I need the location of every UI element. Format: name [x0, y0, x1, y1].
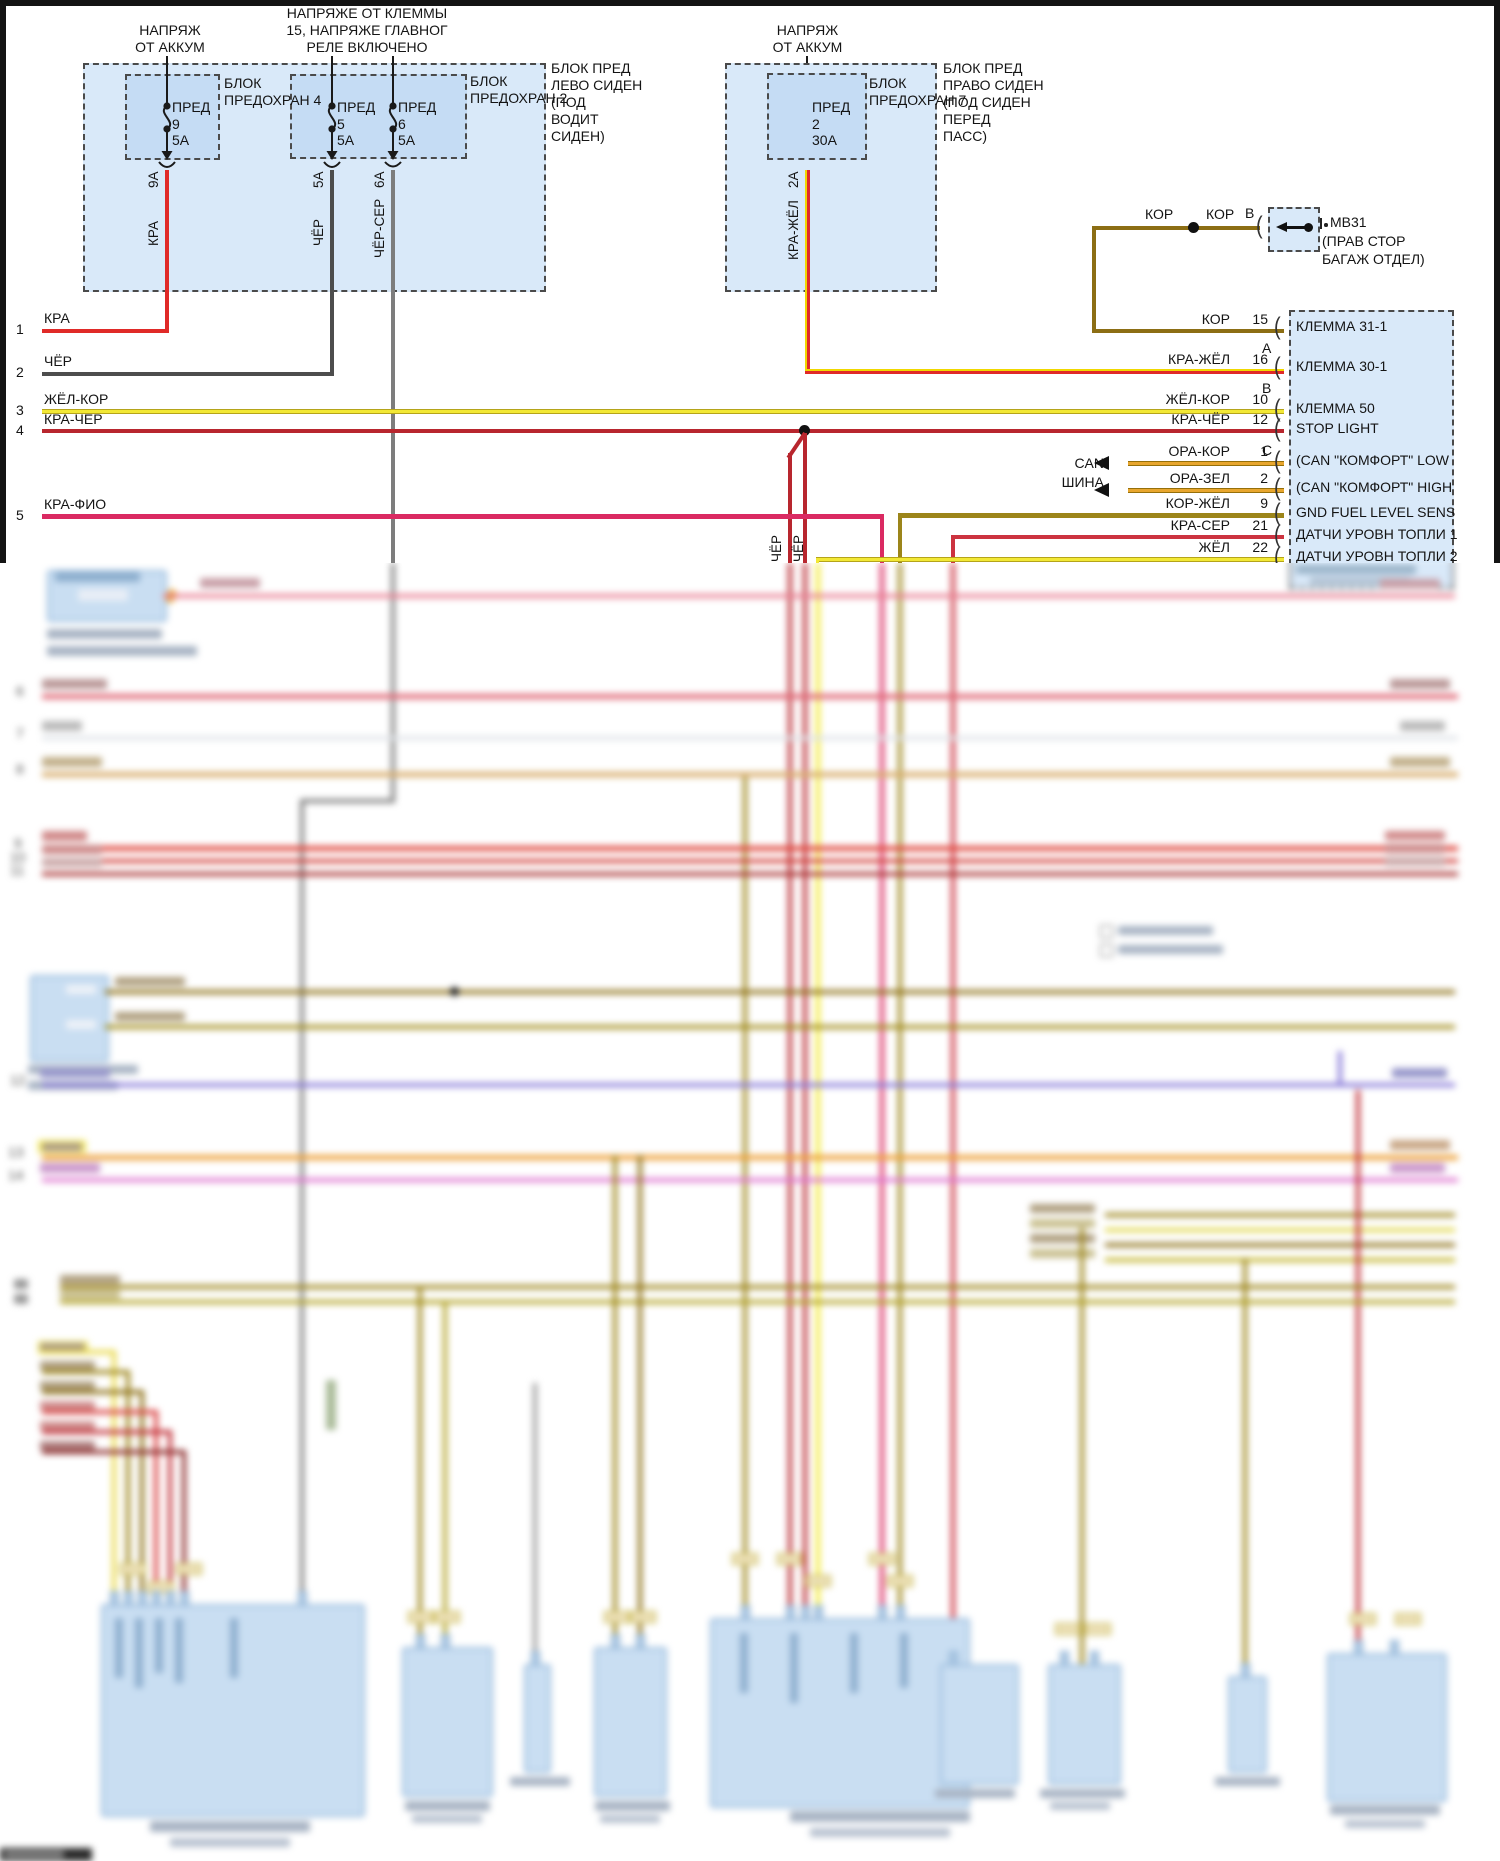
blurred-pin — [1060, 1651, 1069, 1666]
fuse9-rating-label: 9А — [146, 162, 161, 188]
splice-dot-kor — [1188, 222, 1199, 233]
blurred-wire-olive — [105, 1025, 1455, 1029]
blurred-wire-red-gray — [951, 563, 955, 1664]
row15-pin: 15 — [1238, 311, 1268, 328]
fuse-panel-right-location: БЛОК ПРЕДПРАВО СИДЕН (ПОД СИДЕНПЕРЕД ПАС… — [943, 60, 1044, 145]
blurred-text — [595, 1801, 670, 1811]
connector-arc-ground: ( — [1256, 214, 1263, 239]
blurred-wire — [154, 1410, 158, 1604]
blurred-tag — [805, 1575, 831, 1587]
blurred-pin — [298, 1591, 307, 1606]
wire2-label: ЧЁР — [44, 353, 72, 370]
blurred-tag — [1055, 1623, 1081, 1635]
row15-desc: КЛЕММА 31-1 — [1296, 318, 1387, 335]
blurred-text — [40, 1068, 110, 1078]
blurred-text — [42, 858, 102, 867]
blurred-wire — [42, 694, 1458, 699]
blurred-pin — [166, 1591, 175, 1606]
wire3-label: ЖЁЛ-КОР — [44, 391, 108, 408]
row22-pin: 22 — [1238, 539, 1268, 556]
blurred-text — [1380, 579, 1440, 589]
blurred-text — [412, 1815, 482, 1823]
blurred-text — [60, 1290, 120, 1299]
blurred-text — [40, 1421, 95, 1430]
blurred-text — [40, 1163, 100, 1173]
blurred-text — [115, 1012, 185, 1021]
feed-battery-label-2: НАПРЯЖОТ АККУМ — [735, 22, 880, 56]
row9-desc: GND FUEL LEVEL SENS — [1296, 504, 1455, 521]
blurred-wire-gray — [300, 799, 395, 803]
blurred-text — [55, 572, 140, 582]
blurred-wire-red — [803, 563, 807, 1618]
blurred-wire-pink — [163, 594, 1455, 598]
fuse5-name: ПРЕД — [337, 99, 375, 116]
blurred-wire — [1080, 1228, 1084, 1664]
fuse2-num: 2 — [812, 116, 820, 133]
row12-wire: КРА-ЧЁР — [1100, 411, 1230, 428]
blurred-text — [1030, 1204, 1095, 1213]
feed-terminal15-label: НАПРЯЖЕ ОТ КЛЕММЫ15, НАПРЯЖЕ ГЛАВНОГРЕЛЕ… — [232, 5, 502, 56]
blurred-component-box — [1228, 1676, 1267, 1773]
fuse9-wire-label: КРА — [146, 206, 161, 246]
blurred-wire — [418, 1285, 422, 1647]
fuse2-rating-label: 2А — [786, 162, 801, 188]
row16-pin: 16 — [1238, 351, 1268, 368]
wire-chyor-ser-vertical — [391, 170, 395, 563]
blurred-pin — [801, 1605, 810, 1620]
ground-symbol-bar — [1320, 218, 1322, 229]
blurred-pin — [814, 1605, 823, 1620]
wire-kra-fio-vertical — [880, 514, 884, 563]
row15-arc: ( — [1274, 315, 1281, 340]
row16-desc: КЛЕММА 30-1 — [1296, 358, 1387, 375]
row2-arc: ( — [1274, 476, 1281, 501]
blurred-pin — [1090, 1651, 1099, 1666]
blurred-text — [40, 1381, 95, 1390]
blurred-vertical-text — [326, 1380, 336, 1430]
blurred-row-num: 11 — [10, 862, 25, 878]
blurred-text — [40, 1401, 95, 1410]
blurred-text — [1330, 1805, 1440, 1815]
blurred-wire-olive — [743, 772, 747, 1618]
ground-pin-letter: B — [1245, 205, 1254, 222]
blurred-text — [1345, 1820, 1425, 1828]
blurred-pin — [416, 1634, 425, 1649]
blurred-wire-red — [788, 563, 792, 1618]
blurred-text — [42, 721, 82, 731]
blurred-component-box — [524, 1664, 551, 1773]
blurred-component-box — [1327, 1653, 1447, 1802]
wire-kra-chyor — [42, 429, 1284, 433]
blurred-tag — [604, 1611, 630, 1623]
blurred-wire — [182, 1450, 186, 1604]
fuse9-amp: 5А — [172, 132, 189, 149]
blurred-text — [790, 1633, 798, 1703]
blurred-tag — [1350, 1613, 1376, 1625]
blurred-wire-violet — [1338, 1051, 1342, 1083]
row12-pin: 12 — [1238, 411, 1268, 428]
blurred-component-box — [940, 1664, 1019, 1785]
fuse6-rating-label: 6А — [372, 162, 387, 188]
blurred-text — [740, 1633, 748, 1693]
blurred-wire-orange — [42, 1155, 1458, 1160]
wiring-diagram-page: НАПРЯЖОТ АККУМ НАПРЯЖЕ ОТ КЛЕММЫ15, НАПР… — [0, 0, 1500, 1861]
blurred-text — [175, 1618, 183, 1683]
fuse6-amp: 5А — [398, 132, 415, 149]
blurred-text — [115, 1618, 123, 1678]
wire-kor-to-ground — [1092, 226, 1260, 230]
blurred-pin — [896, 1605, 905, 1620]
blurred-text — [4, 1851, 64, 1858]
wire5-label: КРА-ФИО — [44, 496, 106, 513]
blurred-junction — [450, 987, 459, 996]
wire-kra-vertical — [165, 170, 169, 333]
blurred-wire — [168, 1430, 172, 1604]
row1-arc: ( — [1274, 449, 1281, 474]
blurred-text — [1030, 1234, 1095, 1243]
blurred-text — [600, 1815, 660, 1823]
blurred-wire — [42, 1390, 140, 1394]
can-bus-label-2: ШИНА — [1014, 474, 1104, 491]
blurred-tag — [869, 1553, 895, 1565]
row12-arc: ( — [1274, 417, 1281, 442]
blurred-text — [405, 1801, 490, 1811]
wire3-num: 3 — [16, 402, 24, 419]
wire-kor-vertical — [1092, 226, 1096, 333]
blurred-pin — [786, 1605, 795, 1620]
blurred-text — [1390, 1140, 1450, 1150]
can-bus-label-1: CAN — [1014, 455, 1104, 472]
blurred-text — [150, 1821, 310, 1832]
blurred-wire — [1243, 1258, 1247, 1676]
blurred-row-num: 6 — [16, 683, 24, 699]
blurred-pin — [611, 1634, 620, 1649]
blurred-wire — [42, 1350, 112, 1354]
ground-name: MB31 — [1330, 214, 1367, 231]
blurred-wire — [1105, 1228, 1455, 1232]
blurred-wire — [42, 872, 1458, 876]
fuse-box-4-label: БЛОКПРЕДОХРАН 4 — [224, 75, 321, 109]
blurred-text — [810, 1828, 950, 1837]
blurred-text — [1118, 926, 1213, 935]
blurred-pin — [878, 1605, 887, 1620]
blurred-wire — [42, 859, 1458, 863]
blurred-tag — [1395, 1613, 1421, 1625]
blurred-text — [42, 679, 107, 689]
blurred-text — [40, 1441, 95, 1450]
blurred-wire-olive — [898, 563, 902, 1618]
row1-pin: 1 — [1238, 443, 1268, 460]
row2-desc: (CAN "КОМФОРТ" HIGH — [1296, 479, 1452, 496]
blurred-text — [1390, 679, 1450, 689]
blurred-wire — [613, 1155, 617, 1647]
wire-ora-zel — [1128, 488, 1284, 493]
blurred-wire — [1356, 1090, 1360, 1653]
blurred-tag — [1085, 1623, 1111, 1635]
fuse6-name: ПРЕД — [398, 99, 436, 116]
wire-kor-label-2: КОР — [1206, 206, 1234, 223]
row12-desc: STOP LIGHT — [1296, 420, 1379, 437]
blurred-text — [42, 757, 102, 767]
blurred-wire — [1105, 1243, 1455, 1247]
row1-desc: (CAN "КОМФОРТ" LOW — [1296, 452, 1449, 469]
blurred-text — [900, 1633, 908, 1688]
fuse6-wire-label: ЧЁР-СЕР — [372, 196, 387, 258]
blurred-text — [42, 1143, 82, 1151]
blurred-text — [1215, 1777, 1280, 1786]
blurred-wire — [60, 1285, 1455, 1289]
blurred-wire-gray — [300, 799, 304, 1608]
blurred-wire — [42, 1430, 168, 1434]
blurred-text — [115, 977, 185, 986]
blurred-tag — [434, 1611, 460, 1623]
fuse5-amp: 5А — [337, 132, 354, 149]
blurred-text — [200, 578, 260, 588]
feed-battery-label-1: НАПРЯЖОТ АККУМ — [95, 22, 245, 56]
wire-chyor-vertical — [330, 170, 334, 376]
wire2-num: 2 — [16, 364, 24, 381]
fuse-panel-left-location: БЛОК ПРЕДЛЕВО СИДЕН (ПОДВОДИТ СИДЕН) — [551, 60, 642, 145]
blurred-text — [510, 1777, 570, 1786]
blurred-tag — [408, 1611, 434, 1623]
blurred-text — [850, 1633, 858, 1693]
wire-kra-zhyol-row16 — [805, 369, 1284, 374]
blurred-tag — [120, 1563, 146, 1575]
branch-label-1: ЧЁР — [769, 524, 784, 562]
blurred-wire — [42, 1450, 182, 1454]
page-border-top — [0, 0, 1500, 6]
row9-wire: КОР-ЖЁЛ — [1100, 495, 1230, 512]
blurred-row-num: 12 — [10, 1072, 26, 1088]
blurred-pin — [110, 1591, 119, 1606]
blurred-wire — [42, 736, 1458, 740]
blurred-row-num: 7 — [16, 725, 24, 741]
blurred-tag — [887, 1575, 913, 1587]
row16-arc: ( — [1274, 355, 1281, 380]
blurred-text — [155, 1618, 163, 1673]
wire-zhyol — [816, 557, 1284, 562]
blurred-text — [170, 1838, 290, 1847]
blurred-text — [47, 646, 197, 656]
wire1-label: КРА — [44, 310, 70, 327]
blurred-pin — [1354, 1640, 1363, 1655]
blurred-text — [14, 1294, 28, 1304]
fuse5-num: 5 — [337, 116, 345, 133]
blurred-component-box — [710, 1618, 970, 1808]
row15-wire: КОР — [1100, 311, 1230, 328]
ground-symbol-dot — [1324, 223, 1328, 227]
blurred-wire-magenta — [42, 1178, 1458, 1182]
blurred-component-box — [402, 1647, 493, 1797]
blurred-pin — [441, 1634, 450, 1649]
fuse9-num: 9 — [172, 116, 180, 133]
blurred-wire-yellow — [816, 563, 820, 1618]
ground-dot — [1304, 223, 1313, 232]
blurred-row-num: 13 — [8, 1144, 24, 1160]
row9-pin: 9 — [1238, 495, 1268, 512]
row21-pin: 21 — [1238, 517, 1268, 534]
blurred-row-num: 14 — [8, 1167, 24, 1183]
blurred-text — [66, 985, 96, 994]
blurred-text — [1030, 1219, 1095, 1228]
blurred-legend-square — [1100, 925, 1113, 938]
wire5-num: 5 — [16, 507, 24, 524]
blurred-pin — [180, 1591, 189, 1606]
blurred-wire — [60, 1300, 1455, 1304]
blurred-text — [42, 831, 87, 841]
row2-wire: ОРА-ЗЕЛ — [1100, 470, 1230, 487]
blurred-pin — [531, 1651, 540, 1666]
wire-kor-row15 — [1092, 329, 1284, 333]
blurred-component-box — [594, 1647, 667, 1797]
blurred-text — [40, 1361, 95, 1370]
blurred-wire — [533, 1383, 537, 1664]
wire-kra-fio — [42, 514, 884, 519]
blurred-text — [1390, 757, 1450, 767]
blurred-pin — [152, 1591, 161, 1606]
row16-wire: КРА-ЖЁЛ — [1100, 351, 1230, 368]
blurred-text — [1296, 565, 1416, 574]
blurred-text — [935, 1789, 1015, 1798]
blurred-pin — [1241, 1663, 1250, 1678]
row22-wire: ЖЁЛ — [1100, 539, 1230, 556]
blurred-component-box — [1048, 1664, 1121, 1785]
blurred-text — [1385, 844, 1445, 853]
blurred-wire — [42, 1410, 154, 1414]
wire-zhyol-kor — [42, 409, 1284, 414]
blurred-wire-gray — [391, 563, 395, 803]
blurred-text — [1040, 1789, 1125, 1798]
row21-wire: КРА-СЕР — [1100, 517, 1230, 534]
fuse2-amp: 30А — [812, 132, 837, 149]
blurred-tag — [777, 1553, 803, 1565]
fuse9-name: ПРЕД — [172, 99, 210, 116]
blurred-text — [1392, 1068, 1447, 1078]
wire1-num: 1 — [16, 321, 24, 338]
ground-loc-1: (ПРАВ СТОР — [1322, 233, 1406, 250]
wire-ora-kor — [1128, 461, 1284, 466]
blurred-wire-brown — [105, 990, 1455, 994]
blurred-text — [1385, 831, 1445, 840]
wire-kor-label-1: КОР — [1145, 206, 1173, 223]
wire-kra — [42, 329, 167, 333]
wire-chyor — [42, 372, 334, 376]
blurred-wire — [638, 1155, 642, 1647]
fuse2-name: ПРЕД — [812, 99, 850, 116]
blurred-wire-violet — [42, 1083, 1455, 1087]
blurred-wire — [42, 846, 1458, 851]
blurred-lower-diagram: 6 7 8 9 10 11 — [0, 563, 1500, 1861]
blurred-pin — [138, 1591, 147, 1606]
blurred-pin — [636, 1634, 645, 1649]
fuse5-wire-label: ЧЁР — [311, 206, 326, 246]
blurred-wire — [443, 1300, 447, 1647]
fuse5-rating-label: 5А — [311, 162, 326, 188]
wire-kra-zhyol-vertical — [805, 170, 810, 373]
blurred-tag — [630, 1611, 656, 1623]
row10-pin: 10 — [1238, 391, 1268, 408]
blurred-text — [1050, 1802, 1110, 1810]
blurred-text — [14, 1279, 28, 1289]
row21-desc: ДАТЧИ УРОВН ТОПЛИ 1 — [1296, 526, 1458, 543]
blurred-wire-crimson — [880, 563, 884, 1618]
row2-pin: 2 — [1238, 470, 1268, 487]
blurred-text — [230, 1618, 238, 1678]
blurred-text — [1030, 1249, 1095, 1258]
ground-arrowhead — [1276, 222, 1287, 232]
blurred-wire — [42, 1370, 126, 1374]
blurred-wire — [112, 1350, 116, 1604]
blurred-wire — [1105, 1258, 1455, 1262]
blurred-text — [790, 1811, 970, 1822]
blurred-text — [60, 1275, 120, 1284]
blurred-row-num: 8 — [16, 761, 24, 777]
ground-loc-2: БАГАЖ ОТДЕЛ) — [1322, 251, 1425, 268]
blurred-text — [1390, 1163, 1445, 1173]
row10-desc: КЛЕММА 50 — [1296, 400, 1375, 417]
blurred-text — [1400, 721, 1445, 731]
blurred-text — [1385, 857, 1445, 866]
fuse2-wire-label: КРА-ЖЁЛ — [786, 198, 801, 260]
blurred-tag — [176, 1563, 202, 1575]
row10-wire: ЖЁЛ-КОР — [1100, 391, 1230, 408]
blurred-text — [47, 629, 162, 639]
blurred-tag — [732, 1553, 758, 1565]
blurred-text — [66, 1020, 96, 1029]
row1-wire: ОРА-КОР — [1100, 443, 1230, 460]
blurred-pin — [949, 1651, 958, 1666]
blurred-text — [78, 589, 128, 601]
fuse6-num: 6 — [398, 116, 406, 133]
blurred-pin — [1390, 1640, 1399, 1655]
wire-kor-zhyol-vertical — [898, 513, 902, 563]
blurred-text — [1118, 945, 1223, 954]
blurred-text — [135, 1618, 143, 1688]
branch-label-2: ЧЁР — [791, 524, 806, 562]
blurred-pin — [124, 1591, 133, 1606]
wire4-num: 4 — [16, 422, 24, 439]
blurred-text — [42, 845, 102, 854]
blurred-legend-square — [1100, 944, 1113, 957]
blurred-pin — [741, 1605, 750, 1620]
blurred-wire — [1105, 1213, 1455, 1217]
blurred-wire — [42, 772, 1458, 777]
